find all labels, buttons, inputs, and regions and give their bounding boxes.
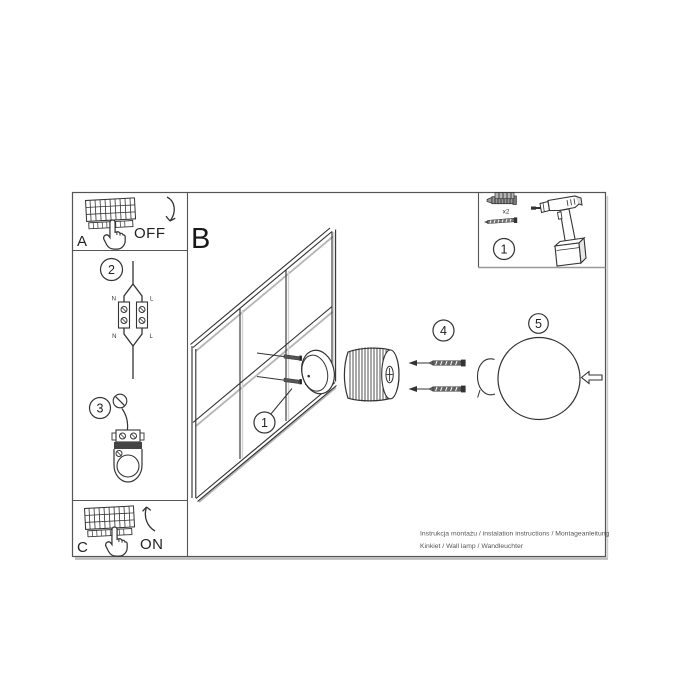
screw-head-icon <box>113 394 127 408</box>
terminal-label-n-bottom: N <box>112 334 116 340</box>
terminal-label-n-top: N <box>112 297 116 303</box>
panel-c-letter: C <box>77 539 88 556</box>
wire-lead <box>122 409 128 431</box>
panel-c: ON C <box>77 506 164 556</box>
step3-number: 3 <box>97 402 104 416</box>
lamp-body <box>344 347 399 402</box>
step2-number: 2 <box>108 263 115 277</box>
glass-globe <box>498 338 580 420</box>
panel-c-state: ON <box>140 536 164 553</box>
terminal-label-l-top: L <box>150 297 154 303</box>
wire-connector <box>119 261 148 379</box>
section-b-label: B <box>191 223 210 255</box>
push-arrow-icon <box>582 372 603 384</box>
step5-number: 5 <box>535 317 542 331</box>
arrow-down-icon <box>166 197 175 221</box>
wire-hook-tail <box>478 390 480 398</box>
bracket-assembly <box>112 430 144 482</box>
instruction-sheet: OFF A 2 N L N L 3 <box>0 0 688 688</box>
step4-group: 4 <box>409 320 466 392</box>
tools-box: x2 1 <box>484 193 586 266</box>
step2-group: 2 N L N L <box>101 259 155 380</box>
callout-1-number: 1 <box>261 416 268 430</box>
plug-count-label: x2 <box>503 209 510 216</box>
screw-with-arrow <box>409 386 466 393</box>
step4-number: 4 <box>440 324 447 338</box>
footer-line1: Instrukcja montażu / instalation instruc… <box>420 531 610 538</box>
panel-a: OFF A <box>77 197 175 250</box>
panel-a-state: OFF <box>134 225 166 242</box>
screw-icon <box>484 217 517 223</box>
footer-line2: Kinkiet / Wall lamp / Wandleuchter <box>420 543 524 550</box>
tools-number: 1 <box>501 243 508 257</box>
step5-group: 5 <box>478 314 603 420</box>
drill-icon <box>531 196 586 266</box>
arrow-up-icon <box>143 507 155 531</box>
wall-plugs-icon <box>487 193 516 205</box>
terminal-label-l-bottom: L <box>150 334 154 340</box>
step3-group: 3 <box>90 394 145 482</box>
screw-with-arrow <box>409 360 466 367</box>
breaker-box-icon <box>85 506 135 537</box>
wire-hook <box>478 359 496 395</box>
panel-a-letter: A <box>77 233 87 250</box>
